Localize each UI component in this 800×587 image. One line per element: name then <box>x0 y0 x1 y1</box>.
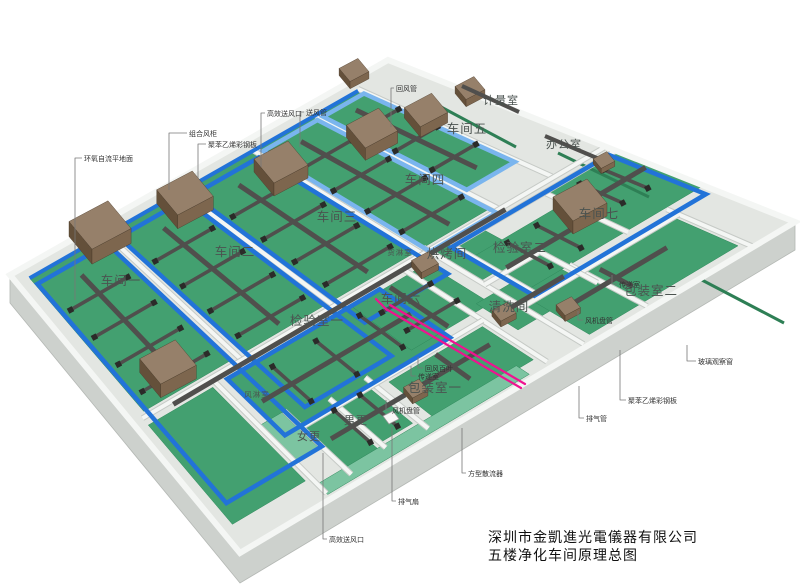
room-label-workshop-3: 车间三 <box>317 209 358 224</box>
room-label-workshop-1: 车间一 <box>101 273 142 288</box>
title-block: 深圳市金凱進光電儀器有限公司 五楼净化车间原理总图 <box>488 530 698 566</box>
isometric-cleanroom-diagram: 环氧自流平地面组合风柜聚苯乙烯彩钢板高效送风口送风管回风管玻璃观察窗聚苯乙烯彩钢… <box>0 0 800 587</box>
callout-line-exhaust-pipe <box>579 386 584 418</box>
room-label-cargo-shower: 货淋室 <box>387 247 413 257</box>
callout-label-glass-window: 玻璃观察窗 <box>698 357 733 366</box>
callout-label-combined-ahu: 组合风柜 <box>189 129 217 138</box>
room-label-workshop-5: 车间五 <box>447 121 488 136</box>
callout-label-fan-coil-2: 风机盘管 <box>585 316 613 325</box>
room-label-men-changing: 男更 <box>344 415 368 427</box>
room-label-workshop-7: 车间七 <box>579 206 620 221</box>
callout-line-glass-window <box>687 345 696 361</box>
callout-label-return-duct: 回风管 <box>396 84 417 93</box>
callout-line-steel-panel-2 <box>620 350 626 400</box>
callout-label-hepa-outlet-2: 高效送风口 <box>329 535 364 544</box>
room-label-baking-room: 烘烤间 <box>427 246 468 261</box>
room-label-packing-2: 包装室二 <box>624 283 678 298</box>
callout-label-steel-panel-1: 聚苯乙烯彩钢板 <box>208 140 257 149</box>
callout-label-exhaust-fan: 排气扇 <box>398 497 419 506</box>
callout-label-square-diffuser: 方型散流器 <box>468 469 503 478</box>
room-label-office: 办公室 <box>546 137 582 151</box>
callout-label-hepa-outlet-1: 高效送风口 <box>267 109 302 118</box>
room-label-inspection-2: 检验室二 <box>493 240 547 255</box>
title-drawing: 五楼净化车间原理总图 <box>488 548 698 566</box>
callout-label-steel-panel-2: 聚苯乙烯彩钢板 <box>628 396 677 405</box>
room-label-metrology-room: 计量室 <box>483 93 519 107</box>
title-company: 深圳市金凱進光電儀器有限公司 <box>488 530 698 548</box>
room-label-inspection-1: 检验室一 <box>290 313 344 328</box>
callout-label-exhaust-pipe: 排气管 <box>586 414 607 423</box>
room-label-air-shower: 风淋室 <box>244 389 270 399</box>
callout-label-supply-duct: 送风管 <box>306 108 327 117</box>
room-label-packing-1: 包装室一 <box>408 380 462 395</box>
diagram-canvas: 环氧自流平地面组合风柜聚苯乙烯彩钢板高效送风口送风管回风管玻璃观察窗聚苯乙烯彩钢… <box>0 0 800 587</box>
room-label-women-changing: 女更 <box>297 429 321 443</box>
room-label-workshop-6: 车间六 <box>381 291 422 306</box>
callout-label-fan-coil-1: 风机盘管 <box>392 406 420 415</box>
callout-label-epoxy-floor: 环氧自流平地面 <box>84 154 133 163</box>
room-label-workshop-2: 车间二 <box>215 244 256 259</box>
room-label-cleaning-room: 清洗间 <box>489 300 530 314</box>
callout-label-transfer-room-1: 传递室 <box>418 372 439 381</box>
callout-label-return-louver: 回风百叶 <box>425 364 453 373</box>
room-label-workshop-4: 车间四 <box>405 172 446 187</box>
green-stripe <box>700 279 784 323</box>
